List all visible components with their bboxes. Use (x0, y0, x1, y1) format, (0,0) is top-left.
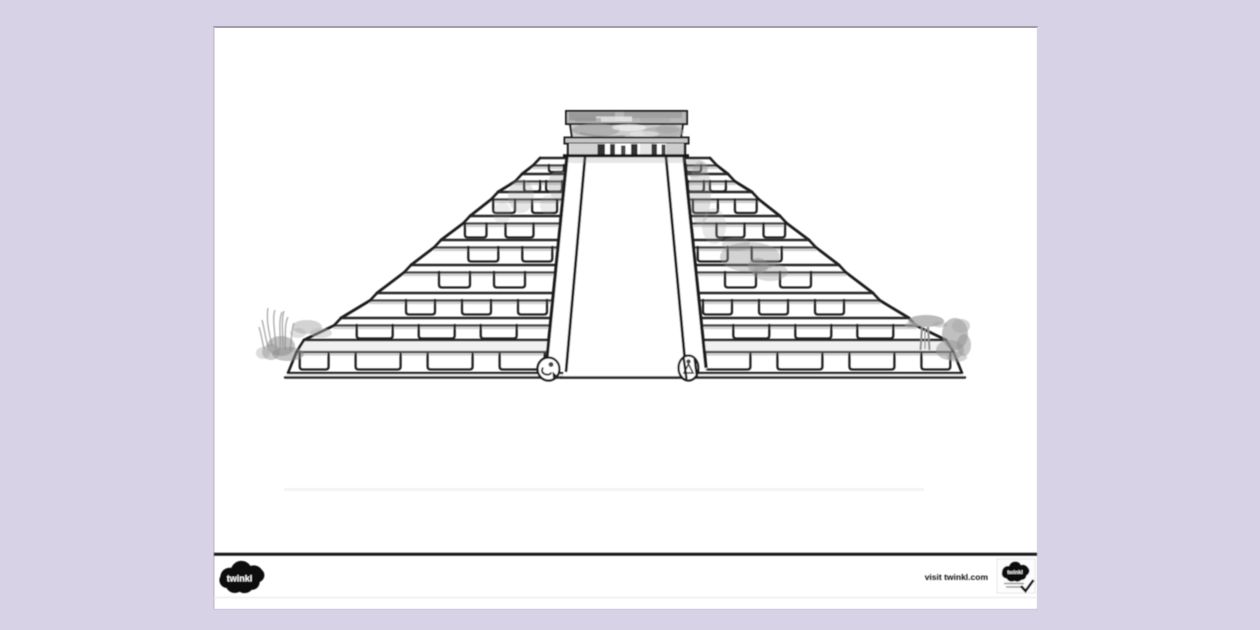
svg-text:twinkl: twinkl (227, 574, 253, 584)
svg-text:visit twinkl.com: visit twinkl.com (925, 572, 989, 582)
svg-text:twinkl: twinkl (1007, 570, 1023, 576)
